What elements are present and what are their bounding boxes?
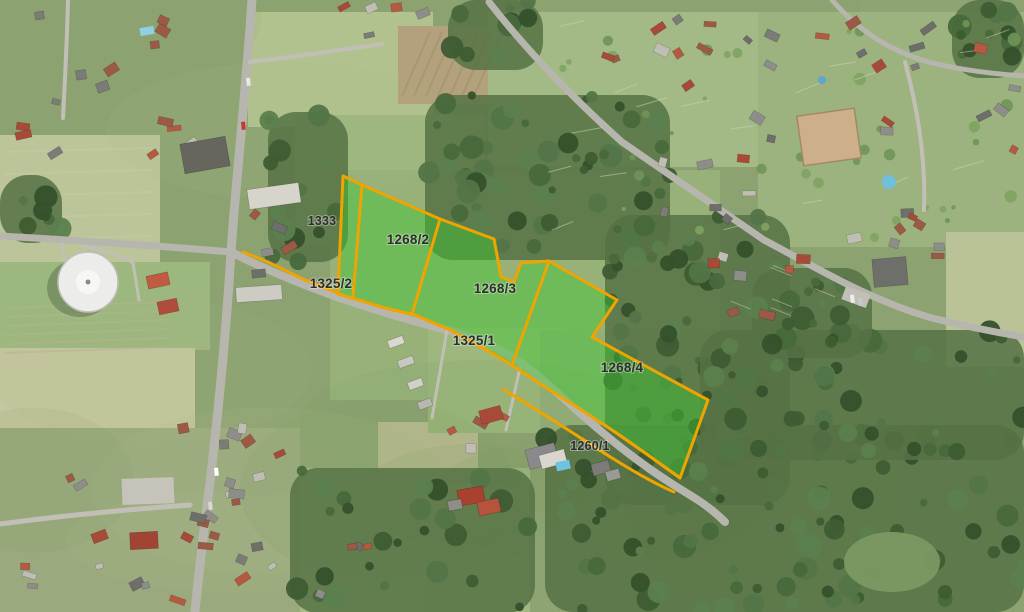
tree xyxy=(730,581,743,594)
tree xyxy=(297,466,307,476)
shrub xyxy=(969,121,980,132)
tree xyxy=(631,573,650,592)
tree xyxy=(955,350,968,363)
tree xyxy=(750,440,767,457)
round-pool xyxy=(818,76,826,84)
tree xyxy=(790,517,807,534)
tree xyxy=(19,217,37,235)
shrub xyxy=(630,154,636,160)
tree xyxy=(814,366,834,386)
tree xyxy=(566,479,578,491)
house xyxy=(742,191,756,196)
tree xyxy=(852,487,874,509)
house xyxy=(198,542,214,550)
forest-clearing xyxy=(844,532,940,592)
tree xyxy=(487,178,506,197)
car xyxy=(241,122,246,130)
shrub xyxy=(854,73,866,85)
tree xyxy=(586,91,598,103)
tree xyxy=(623,110,641,128)
tree xyxy=(682,232,696,246)
tree xyxy=(572,524,591,543)
building xyxy=(236,284,283,302)
tree xyxy=(920,499,927,506)
house xyxy=(704,21,717,27)
tree xyxy=(947,489,968,510)
satellite-map-view: 1333 1268/2 1268/3 1268/4 1325/2 1325/1 … xyxy=(0,0,1024,612)
tree xyxy=(508,211,527,230)
shrub xyxy=(732,48,742,58)
tree xyxy=(647,537,655,545)
house xyxy=(237,423,247,434)
tree xyxy=(496,239,510,253)
tree xyxy=(825,336,837,348)
shrub xyxy=(1004,190,1016,202)
parcel-label-1325-2: 1325/2 xyxy=(310,276,353,291)
house xyxy=(141,581,150,589)
tree xyxy=(1003,47,1022,66)
shrub xyxy=(1008,33,1021,46)
tree xyxy=(652,241,665,254)
shrub xyxy=(870,233,879,242)
tree xyxy=(788,356,803,371)
tree xyxy=(575,459,592,476)
tree xyxy=(518,517,537,536)
tree xyxy=(313,227,325,239)
parcel-label-1268-4: 1268/4 xyxy=(601,360,644,375)
tree xyxy=(816,518,824,526)
shrub xyxy=(756,164,766,174)
tree xyxy=(410,498,432,520)
round-pool xyxy=(882,175,896,189)
tree xyxy=(969,475,988,494)
tree xyxy=(451,5,469,23)
tree xyxy=(682,316,691,325)
parcel-label-1268-3: 1268/3 xyxy=(474,281,517,296)
tree xyxy=(811,277,820,286)
tree xyxy=(592,517,600,525)
tree xyxy=(756,385,768,397)
tree xyxy=(750,209,766,225)
shrub xyxy=(940,206,947,213)
tree xyxy=(840,390,862,412)
tree xyxy=(316,567,334,585)
tree xyxy=(466,575,478,587)
tree xyxy=(703,366,725,388)
tree xyxy=(521,119,529,127)
tree xyxy=(470,468,491,489)
tree xyxy=(818,299,826,307)
tree xyxy=(997,505,1019,527)
shrub xyxy=(884,149,895,160)
tree xyxy=(948,443,965,460)
tree xyxy=(600,150,610,160)
tree xyxy=(609,253,620,264)
tree xyxy=(795,533,817,555)
house xyxy=(931,253,944,259)
tree xyxy=(418,162,440,184)
tree xyxy=(468,91,476,99)
tree xyxy=(373,532,392,551)
tree xyxy=(615,101,625,111)
house xyxy=(34,11,44,20)
shrub xyxy=(642,110,650,118)
shrub xyxy=(813,177,824,188)
house xyxy=(251,542,263,552)
building xyxy=(447,499,463,511)
car xyxy=(858,298,863,306)
tree xyxy=(323,585,347,609)
tree xyxy=(914,345,932,363)
tree xyxy=(538,140,560,162)
tree xyxy=(965,523,981,539)
tree xyxy=(426,561,448,583)
tree xyxy=(822,586,834,598)
tree xyxy=(585,152,598,165)
shrub xyxy=(603,36,613,46)
tree xyxy=(629,311,641,323)
parcel-label-1260-1: 1260/1 xyxy=(570,439,609,453)
shrub xyxy=(566,59,572,65)
tree xyxy=(807,486,831,510)
tree xyxy=(443,143,460,160)
house xyxy=(734,270,747,281)
tree xyxy=(793,562,808,577)
tree xyxy=(791,411,805,425)
tree xyxy=(491,50,507,66)
tree xyxy=(988,546,1000,558)
tree xyxy=(924,443,937,456)
tree xyxy=(932,429,940,437)
tree xyxy=(724,408,747,431)
house xyxy=(75,69,86,80)
tree xyxy=(648,581,670,603)
house xyxy=(466,444,476,453)
tree xyxy=(987,368,997,378)
house xyxy=(766,134,775,143)
tree xyxy=(636,547,645,556)
shrub xyxy=(622,207,626,211)
tree xyxy=(558,133,579,154)
tree xyxy=(613,323,630,340)
tree xyxy=(415,477,434,496)
tree xyxy=(634,191,653,210)
tree xyxy=(269,140,291,162)
tree xyxy=(420,526,430,536)
tree xyxy=(660,325,677,342)
shrub xyxy=(962,20,969,27)
tree xyxy=(907,442,921,456)
house xyxy=(785,266,793,274)
tree xyxy=(558,489,568,499)
tree xyxy=(580,166,588,174)
tree xyxy=(665,504,676,515)
tree xyxy=(503,102,519,118)
shrub xyxy=(634,170,644,180)
house xyxy=(881,127,894,135)
building xyxy=(130,531,159,549)
tree xyxy=(771,359,784,372)
tree xyxy=(595,507,606,518)
tree xyxy=(588,557,606,575)
shrub xyxy=(801,169,811,179)
house xyxy=(150,41,160,49)
shrub xyxy=(761,223,769,231)
tree xyxy=(830,305,850,325)
parcel-label-1268-2: 1268/2 xyxy=(387,232,430,247)
tree xyxy=(327,158,335,166)
house xyxy=(737,154,750,163)
tree xyxy=(342,503,353,514)
house xyxy=(815,33,829,40)
shrub xyxy=(945,218,950,223)
tree xyxy=(833,558,845,570)
building xyxy=(872,257,908,288)
tree xyxy=(624,246,646,268)
tree xyxy=(736,367,757,388)
tree xyxy=(861,443,876,458)
tree xyxy=(572,154,580,162)
parcel-label-1333: 1333 xyxy=(308,214,337,228)
parking-area xyxy=(122,477,175,505)
tree xyxy=(819,421,829,431)
tree xyxy=(736,241,753,258)
tree xyxy=(459,47,474,62)
tree xyxy=(19,196,28,205)
tree xyxy=(613,225,621,233)
tree xyxy=(865,426,879,440)
tree xyxy=(41,211,51,221)
tree xyxy=(588,194,607,213)
tree xyxy=(634,215,655,236)
tree xyxy=(701,523,719,541)
tree xyxy=(757,467,768,478)
tree xyxy=(729,565,738,574)
tree xyxy=(809,319,817,327)
tree xyxy=(365,562,374,571)
tree xyxy=(689,462,708,481)
tree xyxy=(1001,535,1020,554)
tree xyxy=(785,597,798,610)
tree xyxy=(804,287,813,296)
tree xyxy=(721,440,743,462)
sand-paddock xyxy=(797,108,861,166)
tree xyxy=(527,239,542,254)
car xyxy=(246,78,251,86)
tree xyxy=(728,371,736,379)
tree xyxy=(753,584,762,593)
tree xyxy=(519,9,538,28)
house xyxy=(390,2,402,12)
tree xyxy=(938,585,952,599)
house xyxy=(231,499,240,506)
tree xyxy=(709,273,725,289)
tree xyxy=(435,508,456,529)
tree xyxy=(654,188,665,199)
tree xyxy=(1013,356,1020,363)
shrub xyxy=(559,65,566,72)
tree xyxy=(669,249,688,268)
tree xyxy=(549,186,556,193)
car xyxy=(208,502,213,510)
house xyxy=(708,258,720,268)
tree xyxy=(839,424,858,443)
tree xyxy=(764,501,773,510)
aerial-map-canvas: 1333 1268/2 1268/3 1268/4 1325/2 1325/1 … xyxy=(0,0,1024,612)
house xyxy=(251,269,266,278)
tree xyxy=(775,523,784,532)
tree xyxy=(557,502,576,521)
tree xyxy=(716,494,725,503)
shrub xyxy=(695,226,704,235)
tree xyxy=(460,135,484,159)
shrub xyxy=(724,51,731,58)
tree xyxy=(515,602,524,611)
house xyxy=(796,254,810,264)
house xyxy=(934,243,944,251)
tree xyxy=(259,111,278,130)
tree xyxy=(980,2,997,19)
tree xyxy=(435,93,456,114)
tree xyxy=(689,261,711,283)
house xyxy=(660,206,669,217)
tree xyxy=(775,445,786,456)
shrub xyxy=(973,139,980,146)
shrub xyxy=(951,205,955,209)
house xyxy=(20,563,29,570)
tree xyxy=(290,253,307,270)
tree xyxy=(762,334,783,355)
tree xyxy=(393,539,401,547)
tree xyxy=(380,581,389,590)
tree xyxy=(777,577,796,596)
tree xyxy=(505,4,514,13)
tree xyxy=(529,164,551,186)
tree xyxy=(308,104,330,126)
house xyxy=(219,440,229,450)
tree xyxy=(850,595,860,605)
tree xyxy=(722,338,739,355)
water-tower-vent xyxy=(86,280,91,285)
parcel-label-1325-1: 1325/1 xyxy=(453,333,496,348)
tree xyxy=(655,140,669,154)
tree xyxy=(877,418,885,426)
tree xyxy=(286,577,308,599)
tree xyxy=(438,159,454,175)
house xyxy=(177,422,189,434)
house xyxy=(228,489,244,500)
tree xyxy=(326,507,335,516)
tree xyxy=(824,519,845,540)
car xyxy=(850,295,855,303)
tree xyxy=(876,460,891,475)
tree xyxy=(457,180,480,203)
house xyxy=(27,583,37,589)
tree xyxy=(683,534,697,548)
tree xyxy=(315,477,334,496)
tree xyxy=(433,121,441,129)
shrub xyxy=(670,131,674,135)
tree xyxy=(451,205,469,223)
house xyxy=(710,204,722,211)
car xyxy=(214,468,219,476)
tree xyxy=(445,123,454,132)
tree xyxy=(956,30,966,40)
